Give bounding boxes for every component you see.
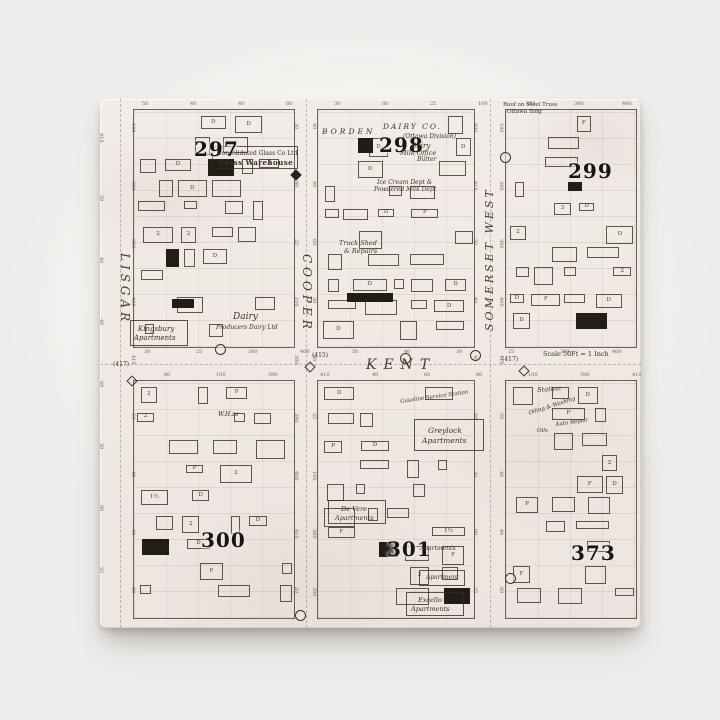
survey-circle-marker <box>295 610 306 621</box>
building-footprint <box>140 159 156 173</box>
lot-number: 25 <box>100 567 103 573</box>
lot-number: 50 <box>130 413 135 419</box>
lot-number: 40 <box>372 373 378 378</box>
lot-number: 380 <box>526 102 536 107</box>
map-annotation: Ottawa Bldg <box>507 109 542 115</box>
building-footprint: D <box>513 313 530 329</box>
map-annotation: (Ottawa Division) <box>403 134 456 141</box>
building-footprint: D <box>358 161 383 177</box>
building-footprint <box>516 267 528 277</box>
map-annotation: & Repairs <box>344 248 377 255</box>
map-annotation: Apartments <box>134 334 176 342</box>
map-annotation: Apartment <box>426 575 459 582</box>
map-annotation: W.H.se <box>218 412 239 419</box>
building-footprint <box>256 440 285 459</box>
building-footprint <box>255 297 275 310</box>
building-footprint <box>253 201 263 219</box>
building-footprint: D <box>606 476 623 494</box>
lot-number: 30 <box>144 350 150 355</box>
lot-number: 60 <box>424 373 430 378</box>
lot-number: 40 <box>100 319 103 325</box>
building-footprint <box>515 182 524 197</box>
lot-number: 40 <box>238 102 244 107</box>
lot-number: 380 <box>311 529 316 539</box>
building-footprint: D <box>353 279 387 291</box>
map-annotation: Producers Dairy Ltd <box>216 325 278 332</box>
building-footprint <box>360 413 373 426</box>
lot-number: 25 <box>311 413 316 419</box>
map-surface: DDD2D3D22DDDDDPDDDDF3D2D2DFDD2P2P21½D2DD… <box>100 99 641 628</box>
map-annotation: Powdered Milk Dept <box>374 187 436 194</box>
building-footprint <box>564 267 576 275</box>
building-footprint <box>368 254 399 266</box>
building-footprint: 2 <box>613 267 631 275</box>
lot-number: 80 <box>472 529 477 535</box>
lot-number: 80 <box>311 355 316 361</box>
lot-number: 390 <box>574 102 584 107</box>
lot-number: 410 <box>632 373 641 378</box>
building-footprint: D <box>578 387 598 404</box>
lot-number: 30 <box>100 443 103 449</box>
building-footprint <box>387 508 408 518</box>
building-footprint <box>413 484 425 497</box>
building-footprint: D <box>361 441 388 452</box>
lot-number: 40 <box>498 529 503 535</box>
building-footprint <box>365 300 397 315</box>
lot-number: 400 <box>612 350 622 355</box>
building-footprint <box>548 137 579 149</box>
building-footprint: P <box>226 387 246 399</box>
lot-number: 40 <box>498 471 503 477</box>
building-footprint <box>213 440 237 454</box>
building-footprint: 2 <box>182 516 199 533</box>
lot-number: 40 <box>130 529 135 535</box>
building-footprint <box>438 460 448 470</box>
lot-number: 50 <box>142 102 148 107</box>
lot-number: 400 <box>622 102 632 107</box>
building-footprint <box>558 588 582 603</box>
building-footprint <box>212 227 233 238</box>
lot-number: 25 <box>472 587 477 593</box>
building-footprint <box>282 563 292 573</box>
building-footprint-solid <box>568 182 583 191</box>
lot-number: 80 <box>100 505 103 511</box>
building-footprint-solid <box>142 539 169 555</box>
map-annotation: Oils <box>537 428 548 434</box>
lot-number: 50 <box>498 413 503 419</box>
page-reference-label: (417) <box>113 361 129 368</box>
lot-number: 30 <box>472 471 477 477</box>
lot-number: 30 <box>334 102 340 107</box>
building-footprint <box>360 460 389 470</box>
map-annotation: Greylock <box>428 427 462 436</box>
city-block: DF2FDPF <box>505 380 637 619</box>
lot-number: 80 <box>382 102 388 107</box>
map-annotation: Kingsbury <box>138 325 174 333</box>
lot-number: 50 <box>352 350 358 355</box>
lot-number: 60 <box>286 102 292 107</box>
building-footprint: D <box>510 294 524 304</box>
building-footprint: D <box>434 300 464 312</box>
building-footprint: D <box>192 490 210 501</box>
street-label-kent: KENT <box>366 358 436 372</box>
building-footprint: D <box>201 116 226 129</box>
building-footprint <box>439 161 466 176</box>
lot-number: 390 <box>580 373 590 378</box>
building-footprint <box>280 585 292 602</box>
survey-circle-marker <box>215 344 226 355</box>
building-footprint: 2 <box>181 227 196 244</box>
building-footprint-solid <box>172 299 194 308</box>
lot-number: 40 <box>130 471 135 477</box>
map-annotation: DAIRY CO. <box>383 123 442 132</box>
lot-number: 50 <box>100 195 103 201</box>
building-footprint: D <box>249 516 268 526</box>
map-annotation: Apartments <box>420 546 456 553</box>
plate-number: 299 <box>568 161 613 181</box>
product-photo-background: DDD2D3D22DDDDDPDDDDF3D2D2DFDD2P2P21½D2DD… <box>0 0 720 720</box>
building-footprint <box>328 413 354 424</box>
building-footprint <box>448 116 463 134</box>
lot-number: 25 <box>430 102 436 107</box>
building-footprint <box>554 433 572 449</box>
page-reference-label: (417) <box>502 356 518 363</box>
building-footprint <box>218 585 250 597</box>
building-footprint: F <box>328 527 355 538</box>
map-annotation: Scale 50Ft = 1 Inch <box>543 351 609 358</box>
building-footprint: D <box>378 209 394 218</box>
lot-number: 60 <box>100 381 103 387</box>
building-footprint <box>455 231 473 244</box>
lot-number: 100 <box>216 373 226 378</box>
building-footprint <box>343 209 368 220</box>
lot-number: 40 <box>472 355 477 361</box>
building-footprint: 3 <box>554 203 572 215</box>
building-footprint <box>595 408 606 422</box>
lot-number: 80 <box>476 373 482 378</box>
building-footprint <box>159 180 173 197</box>
lot-number: 410 <box>472 181 477 191</box>
building-footprint: D <box>445 279 465 291</box>
city-block: 2P2P21½D2DDP <box>133 380 295 619</box>
building-footprint: 1½ <box>432 527 464 535</box>
lot-number: 25 <box>293 239 298 245</box>
building-footprint <box>517 588 541 602</box>
street-label-somerset-west: SOMERSET WEST <box>484 187 495 331</box>
building-footprint <box>238 227 257 243</box>
lot-number: 100 <box>293 297 298 307</box>
building-footprint <box>436 321 464 329</box>
lot-number: 50 <box>293 587 298 593</box>
lot-number: 40 <box>472 297 477 303</box>
lot-number: 400 <box>130 297 135 307</box>
building-footprint-solid <box>347 293 393 302</box>
map-annotation: BORDEN <box>322 128 376 137</box>
plate-number: 300 <box>201 530 246 550</box>
marble-map-tile: DDD2D3D22DDDDDPDDDDF3D2D2DFDD2P2P21½D2DD… <box>100 99 641 628</box>
building-footprint: D <box>178 180 207 198</box>
map-annotation: De Vere <box>341 506 367 513</box>
lot-number: 400 <box>498 297 503 307</box>
building-footprint <box>411 300 427 309</box>
building-footprint-solid <box>166 249 179 267</box>
lot-number: 400 <box>293 471 298 481</box>
building-footprint: D <box>456 138 471 156</box>
building-footprint <box>184 249 196 267</box>
building-footprint <box>212 180 241 197</box>
lot-number: 40 <box>311 123 316 129</box>
lot-number: 410 <box>130 355 135 365</box>
street-label-cooper: COOPER <box>301 254 313 333</box>
building-footprint <box>394 279 404 289</box>
building-footprint: D <box>579 203 595 212</box>
lot-number: 25 <box>508 350 514 355</box>
building-footprint <box>552 247 578 261</box>
lot-number: 40 <box>190 102 196 107</box>
building-footprint <box>582 433 608 446</box>
survey-circle-marker <box>505 573 516 584</box>
building-footprint: P <box>186 465 202 473</box>
lot-number: 30 <box>456 350 462 355</box>
building-footprint: F <box>577 116 592 132</box>
lot-number: 100 <box>528 373 538 378</box>
building-footprint <box>184 201 197 209</box>
building-footprint: F <box>531 294 560 307</box>
lot-number: 60 <box>311 239 316 245</box>
building-footprint: D <box>203 249 226 264</box>
lot-number: 80 <box>293 181 298 187</box>
map-annotation: Glass Warehouse <box>219 159 293 167</box>
lot-number: 390 <box>268 373 278 378</box>
city-block: F3D2D2DFDD <box>505 109 637 348</box>
building-footprint <box>328 279 338 292</box>
lot-number: 400 <box>300 350 310 355</box>
lot-number: 380 <box>293 355 298 365</box>
building-footprint <box>411 279 433 292</box>
building-footprint <box>169 440 198 453</box>
building-footprint <box>534 267 553 285</box>
lot-number: 30 <box>311 297 316 303</box>
survey-circle-marker <box>500 152 511 163</box>
lot-number: 410 <box>320 373 330 378</box>
building-footprint: P <box>516 497 538 513</box>
lot-number: 390 <box>498 239 503 249</box>
lot-number: 100 <box>130 123 135 133</box>
street-label-lisgar: LISGAR <box>119 253 131 325</box>
plate-number: 373 <box>571 543 616 563</box>
map-annotation: Apartments <box>422 437 467 446</box>
building-footprint <box>141 270 163 279</box>
lot-number: 60 <box>498 587 503 593</box>
building-footprint: 2 <box>137 413 154 422</box>
building-footprint: F <box>577 476 602 493</box>
building-footprint <box>546 521 565 532</box>
lot-number: 30 <box>293 123 298 129</box>
building-footprint <box>198 387 209 404</box>
lot-number: 40 <box>100 257 103 263</box>
building-footprint: 2 <box>143 227 172 243</box>
building-footprint <box>138 201 165 211</box>
building-footprint <box>615 588 634 596</box>
building-footprint <box>407 460 419 478</box>
building-footprint: 2 <box>602 455 618 471</box>
building-footprint <box>325 186 335 202</box>
building-footprint <box>254 413 271 424</box>
building-footprint: D <box>606 226 633 243</box>
lot-number: 380 <box>560 350 570 355</box>
building-footprint: P <box>324 441 343 453</box>
building-footprint-solid <box>358 138 373 153</box>
lot-number: 100 <box>478 102 488 107</box>
map-annotation: Consolidated Glass Co Ltd <box>217 151 297 158</box>
building-footprint <box>225 201 243 214</box>
building-footprint: 2 <box>141 387 158 403</box>
map-annotation: Dairy <box>233 312 258 322</box>
map-annotation: Excello <box>418 597 442 604</box>
building-footprint: D <box>235 116 262 133</box>
building-footprint <box>400 321 417 339</box>
building-footprint <box>587 247 619 258</box>
building-footprint <box>140 585 151 594</box>
building-footprint: 2 <box>220 465 253 483</box>
building-footprint <box>356 484 365 493</box>
lot-number: 80 <box>164 373 170 378</box>
building-footprint <box>585 566 606 584</box>
building-footprint <box>328 254 342 271</box>
building-footprint: P <box>200 563 223 579</box>
building-footprint <box>588 497 610 514</box>
building-footprint: 1½ <box>141 490 168 505</box>
building-footprint: D <box>324 387 354 400</box>
lot-number: 410 <box>293 529 298 539</box>
building-footprint: P <box>411 209 438 218</box>
lot-number: 60 <box>472 413 477 419</box>
building-footprint <box>410 254 444 265</box>
lot-number: 390 <box>293 413 298 423</box>
lot-number: 380 <box>248 350 258 355</box>
building-footprint <box>156 516 173 531</box>
building-footprint: D <box>165 159 192 170</box>
lot-number: 40 <box>311 181 316 187</box>
lot-number: 50 <box>472 239 477 245</box>
lot-number: 410 <box>100 133 103 143</box>
lot-number: 380 <box>498 181 503 191</box>
building-footprint <box>576 521 609 529</box>
lot-number: 390 <box>130 239 135 249</box>
lot-number: 400 <box>472 123 477 133</box>
building-footprint <box>552 497 574 512</box>
lot-number: 100 <box>311 471 316 481</box>
lot-number: 25 <box>196 350 202 355</box>
map-annotation: Apartments <box>411 606 450 613</box>
map-annotation: Apartments <box>335 515 374 522</box>
building-footprint <box>327 484 344 501</box>
building-footprint: 2 <box>510 226 525 239</box>
building-footprint: D <box>596 294 622 309</box>
lot-number: 410 <box>498 355 503 365</box>
building-footprint: D <box>323 321 353 339</box>
map-annotation: Butter <box>417 157 437 164</box>
building-footprint <box>325 209 339 218</box>
building-footprint <box>513 387 533 405</box>
building-footprint-solid <box>576 313 607 329</box>
lot-number: 60 <box>130 587 135 593</box>
lot-number: 100 <box>498 123 503 133</box>
lot-number: 390 <box>311 587 316 597</box>
lot-number: 40 <box>404 350 410 355</box>
building-footprint <box>564 294 585 303</box>
lot-number: 380 <box>130 181 135 191</box>
